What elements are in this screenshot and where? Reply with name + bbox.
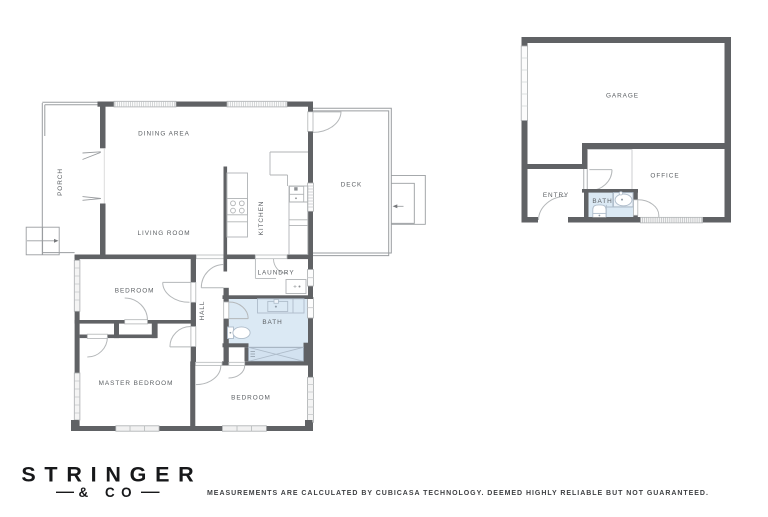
svg-text:PORCH: PORCH: [57, 168, 64, 196]
svg-text:GARAGE: GARAGE: [606, 93, 639, 100]
svg-text:BATH: BATH: [262, 319, 282, 326]
svg-text:MASTER BEDROOM: MASTER BEDROOM: [99, 380, 174, 387]
svg-text:STRINGER: STRINGER: [21, 463, 202, 487]
svg-text:ENTRY: ENTRY: [543, 192, 569, 199]
svg-text:DINING AREA: DINING AREA: [138, 130, 190, 137]
svg-text:OFFICE: OFFICE: [650, 172, 679, 179]
svg-text:BATH: BATH: [592, 198, 612, 205]
svg-text:LAUNDRY: LAUNDRY: [257, 270, 294, 277]
svg-text:BEDROOM: BEDROOM: [231, 395, 271, 402]
svg-text:LIVING ROOM: LIVING ROOM: [137, 230, 190, 237]
svg-text:& CO: & CO: [79, 485, 138, 500]
svg-text:BEDROOM: BEDROOM: [115, 287, 155, 294]
svg-text:KITCHEN: KITCHEN: [258, 201, 265, 236]
svg-text:MEASUREMENTS ARE CALCULATED BY: MEASUREMENTS ARE CALCULATED BY CUBICASA …: [207, 490, 709, 497]
svg-text:DECK: DECK: [341, 182, 363, 189]
svg-text:HALL: HALL: [199, 301, 206, 321]
